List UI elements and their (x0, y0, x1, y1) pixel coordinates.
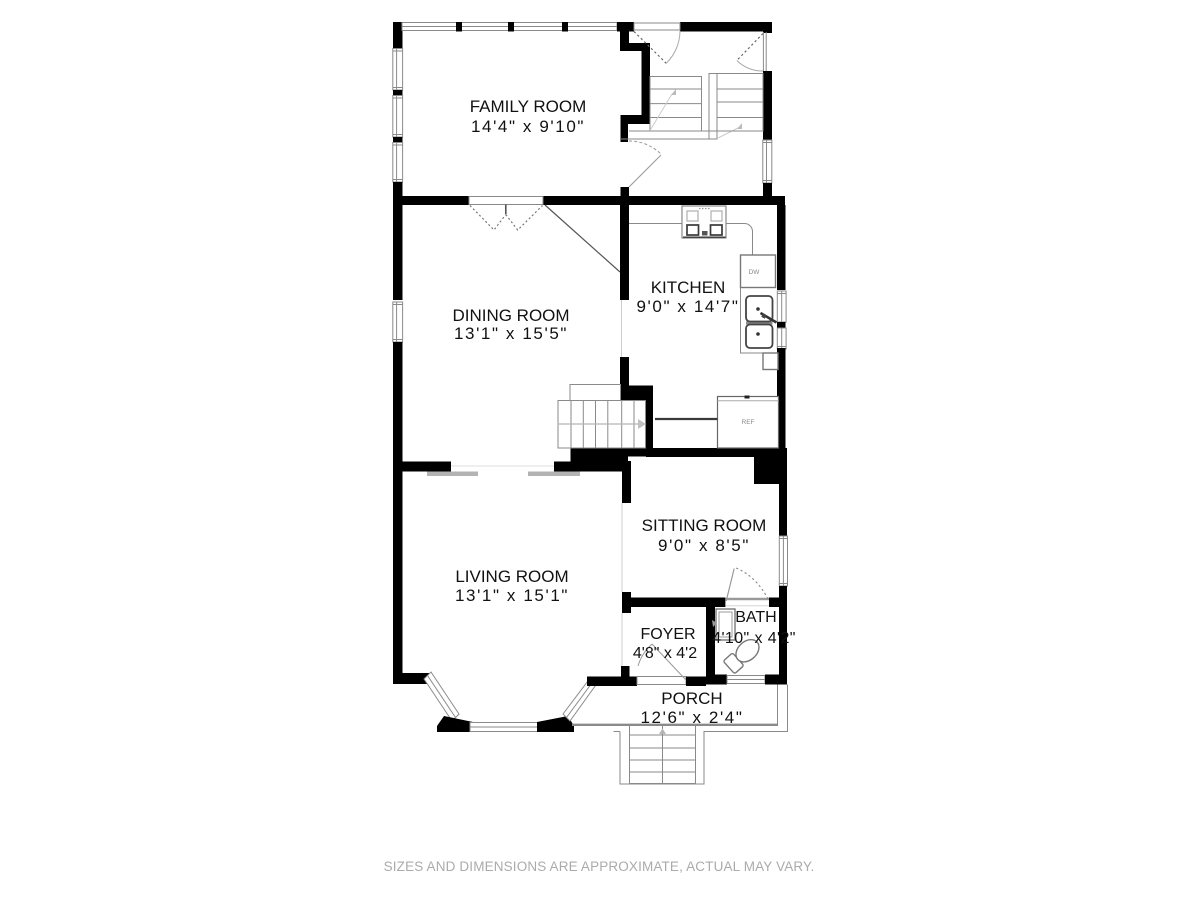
svg-text:PORCH: PORCH (661, 689, 722, 708)
svg-text:13'1" x 15'5": 13'1" x 15'5" (454, 324, 568, 343)
svg-text:LIVING ROOM: LIVING ROOM (455, 567, 568, 586)
svg-text:12'6" x 2'4": 12'6" x 2'4" (641, 708, 744, 727)
svg-text:4'8" x 4'2: 4'8" x 4'2 (633, 645, 697, 662)
svg-text:KITCHEN: KITCHEN (651, 278, 726, 297)
svg-text:14'4" x 9'10": 14'4" x 9'10" (471, 117, 585, 136)
svg-text:13'1" x 15'1": 13'1" x 15'1" (455, 586, 569, 605)
svg-text:FAMILY ROOM: FAMILY ROOM (470, 97, 587, 116)
svg-text:BATH: BATH (735, 609, 776, 626)
svg-text:SIZES AND DIMENSIONS ARE APPRO: SIZES AND DIMENSIONS ARE APPROXIMATE, AC… (384, 859, 815, 874)
svg-text:FOYER: FOYER (640, 626, 695, 643)
svg-text:SITTING ROOM: SITTING ROOM (642, 516, 767, 535)
svg-text:9'0" x 8'5": 9'0" x 8'5" (658, 536, 750, 555)
svg-text:DW: DW (749, 269, 761, 276)
svg-text:4'10" x 4'2": 4'10" x 4'2" (712, 630, 796, 647)
svg-text:REF: REF (742, 419, 755, 426)
svg-text:DINING ROOM: DINING ROOM (452, 306, 569, 325)
svg-text:9'0" x 14'7": 9'0" x 14'7" (637, 297, 740, 316)
